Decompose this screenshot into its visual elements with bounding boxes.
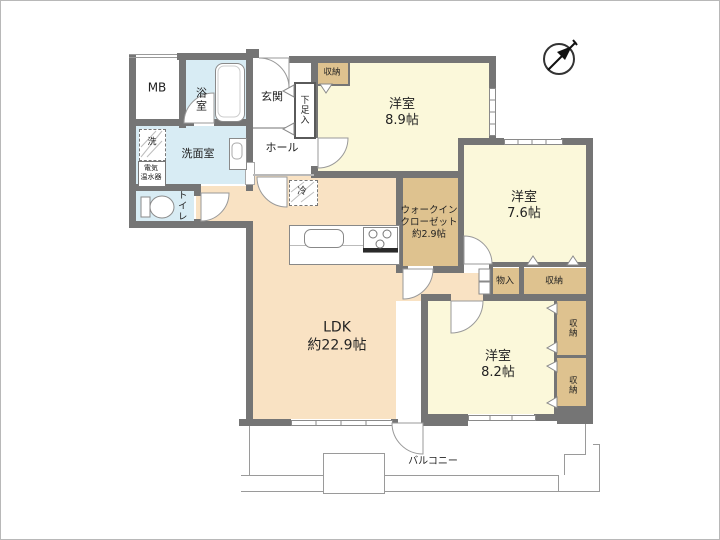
wall [311,56,496,63]
wall [519,265,524,296]
wall [557,355,586,358]
label-closet-mid: 収納 [545,276,563,287]
balcony-line [564,454,565,475]
wall [314,171,464,178]
label-bedroom3-name: 洋室 [481,349,515,365]
window [489,88,496,136]
balcony-line [249,426,250,475]
label-water-heater-line1: 電気 [141,164,162,173]
wall [458,138,504,145]
wall [433,266,464,273]
label-mb: MB [148,81,167,96]
kitchen-stove-edge [363,248,398,252]
wall [586,138,593,424]
wall [129,54,136,228]
label-ldk: LDK 約22.9帖 [307,320,366,355]
bathtub [215,63,245,122]
label-hall: ホール [266,141,299,155]
label-wic: ウォークイン クローゼット 約2.9帖 [400,205,457,241]
label-bedroom2-name: 洋室 [507,190,541,206]
label-ldk-size: 約22.9帖 [307,337,366,355]
wall [483,294,561,301]
label-balcony: バルコニー [408,456,458,469]
wall-louver [129,54,179,55]
wash-basin [229,138,247,170]
balcony-line [558,475,559,492]
room-ldk [253,176,396,419]
balcony-line [599,444,600,492]
balcony-line [585,424,586,454]
hall-ldk-boundary [253,174,314,176]
label-closet-entrance: 収納 [323,68,340,79]
label-washer: 洗 [147,137,156,148]
label-closet-right-upper: 収納 [568,319,577,338]
balcony-line [241,475,323,476]
kitchen-sink [304,229,344,248]
label-water-heater-line2: 温水器 [141,173,162,182]
wall [489,262,586,267]
window-bedroom3 [468,415,536,421]
wall [177,53,253,60]
wall [421,414,468,426]
label-entrance: 玄関 [261,90,283,104]
wall [179,53,186,128]
wall [396,266,408,273]
label-shoe-cabinet: 下足入 [299,95,308,125]
wall [489,56,496,88]
wall [194,184,201,196]
wall [557,406,593,424]
label-bedroom1: 洋室 8.9帖 [385,97,419,130]
room-ldk-toilet-lobby [196,186,253,221]
label-wic-line3: 約2.9帖 [400,229,457,241]
label-fridge: 冷 [297,186,307,198]
window-ldk [291,420,393,426]
label-bedroom1-name: 洋室 [385,97,419,113]
balcony-line [241,491,599,492]
compass-icon [544,40,577,74]
label-bedroom3: 洋室 8.2帖 [481,349,515,382]
label-toilet: トイレ [176,190,186,222]
label-bedroom1-size: 8.9帖 [385,113,419,129]
balcony-hatch-box [323,453,385,494]
wall [246,184,253,191]
wall-louver [129,57,179,58]
label-water-heater: 電気 温水器 [141,164,162,182]
window [504,139,563,145]
label-ldk-name: LDK [307,320,366,338]
wall [246,56,253,163]
label-wic-line1: ウォークイン [400,205,457,217]
wall [129,119,194,126]
wall [489,262,493,298]
wall [246,226,253,426]
door-arc-balcony [392,423,423,454]
label-bedroom2-size: 7.6帖 [507,206,541,222]
wall [534,414,561,421]
label-bedroom3-size: 8.2帖 [481,365,515,381]
floor-plan: MB 浴室 玄関 下足入 収納 ホール 洋室 8.9帖 洗 洗面室 電気 温水器… [0,0,720,540]
balcony-line [383,475,558,476]
balcony-line [564,454,586,455]
label-closet-right-lower: 収納 [568,376,577,395]
label-bath: 浴室 [196,87,207,113]
entrance-step-line [253,127,294,129]
wall [421,294,428,421]
label-washroom: 洗面室 [182,147,215,161]
wall [129,221,253,228]
label-wic-line2: クローゼット [400,217,457,229]
label-bedroom2: 洋室 7.6帖 [507,190,541,223]
label-storage-mono: 物入 [496,276,514,287]
wall [239,419,291,426]
wall [458,138,464,273]
